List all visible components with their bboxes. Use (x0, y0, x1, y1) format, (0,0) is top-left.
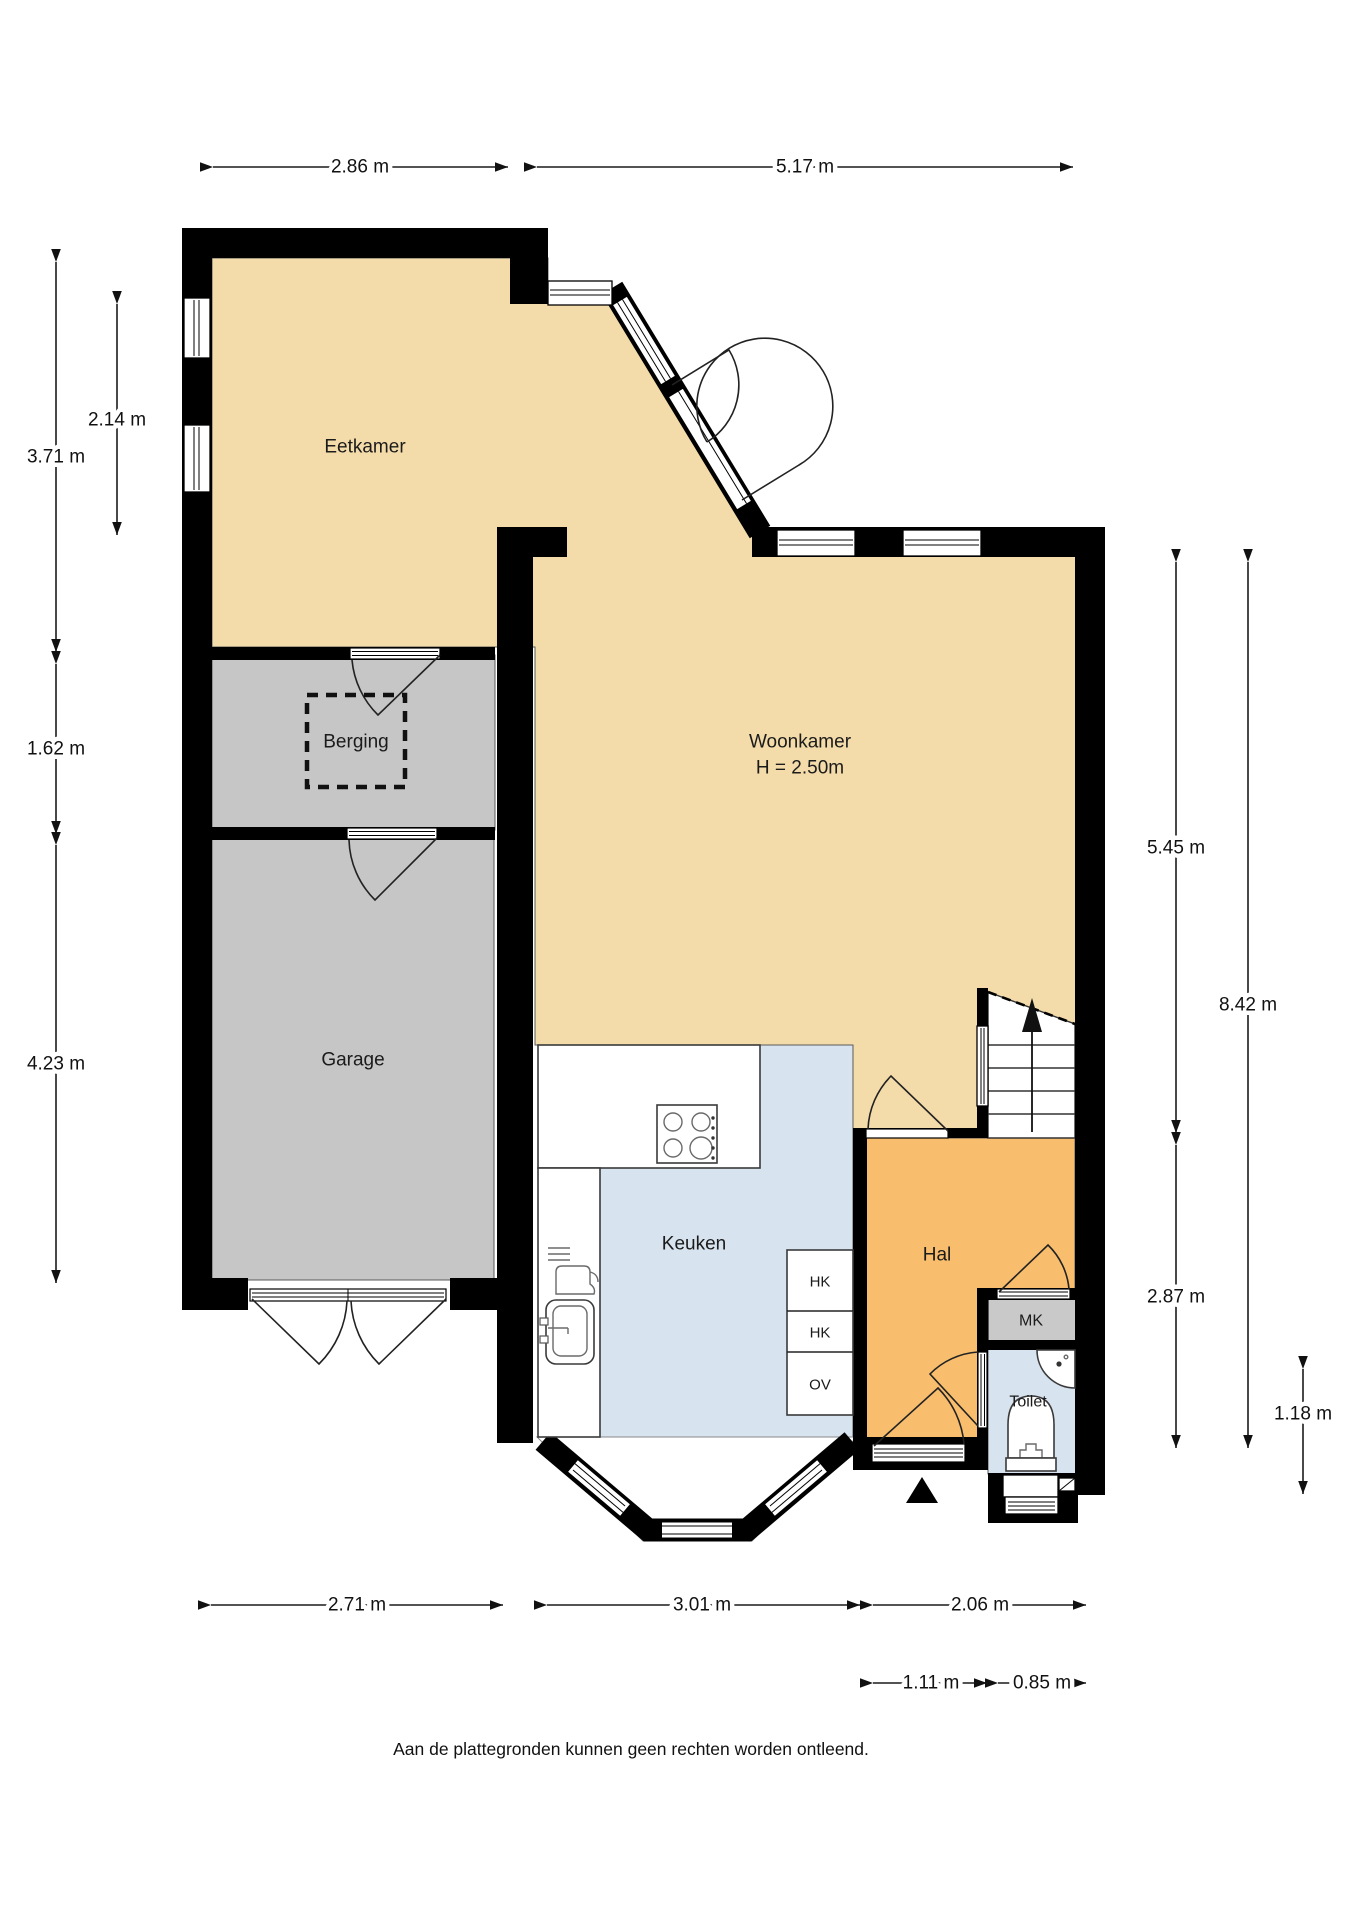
svg-text:4.23 m: 4.23 m (27, 1054, 85, 1075)
dim-top-1: 2.86 m (213, 157, 508, 178)
wall-keuken-hal (853, 1128, 867, 1437)
dim-left-4: 4.23 m (27, 845, 85, 1283)
dim-bottom-4: 1.11 m (873, 1673, 987, 1694)
dim-left-2: 2.14 m (88, 304, 146, 535)
entrance-arrow-icon (906, 1477, 938, 1503)
svg-text:3.71 m: 3.71 m (27, 447, 85, 468)
svg-text:2.06 m: 2.06 m (951, 1595, 1009, 1616)
label-eetkamer: Eetkamer (324, 437, 406, 458)
dim-bottom-5: 0.85 m (998, 1673, 1086, 1694)
stove-icon (657, 1105, 717, 1163)
dim-right-1: 5.45 m (1147, 562, 1205, 1133)
label-garage: Garage (321, 1050, 384, 1071)
svg-text:3.01 m: 3.01 m (673, 1595, 731, 1616)
svg-text:0.85 m: 0.85 m (1013, 1673, 1071, 1694)
svg-text:2.71 m: 2.71 m (328, 1595, 386, 1616)
dim-top-2: 5.17 m (537, 157, 1073, 178)
label-keuken: Keuken (662, 1234, 726, 1255)
label-woonkamer: Woonkamer (749, 732, 852, 753)
stairs-railing (977, 1026, 988, 1106)
wall-left (182, 228, 212, 1310)
label-closet-hk2: HK (810, 1325, 831, 1342)
wall-garage-bottom-right (450, 1278, 498, 1310)
label-closet-hk1: HK (810, 1274, 831, 1291)
wall-stub (497, 527, 567, 557)
window-top-small (548, 281, 612, 305)
svg-text:1.18 m: 1.18 m (1274, 1404, 1332, 1425)
window-woonkamer-top-1 (777, 530, 855, 556)
wall-garage-bottom-left (182, 1278, 248, 1310)
window-eetkamer-left-2 (184, 425, 210, 492)
floorplan-page: Eetkamer Woonkamer H = 2.50m Berging Gar… (0, 0, 1358, 1920)
dim-bottom-2: 3.01 m (547, 1595, 860, 1616)
wall-mk-toilet (988, 1340, 1075, 1350)
dim-right-3: 2.87 m (1147, 1145, 1205, 1448)
wall-top (182, 228, 510, 258)
dim-left-3: 1.62 m (27, 664, 85, 834)
dim-right-4: 1.18 m (1274, 1369, 1332, 1494)
svg-text:8.42 m: 8.42 m (1219, 995, 1277, 1016)
dim-left-1: 3.71 m (27, 262, 85, 652)
floorplan-svg: Eetkamer Woonkamer H = 2.50m Berging Gar… (0, 0, 1358, 1920)
window-eetkamer-left-1 (184, 298, 210, 358)
wall-top-notch (510, 228, 548, 304)
svg-text:1.62 m: 1.62 m (27, 739, 85, 760)
label-mk: MK (1019, 1313, 1043, 1330)
wall-right (1075, 527, 1105, 1495)
svg-text:5.45 m: 5.45 m (1147, 838, 1205, 859)
svg-text:2.87 m: 2.87 m (1147, 1287, 1205, 1308)
dim-right-2: 8.42 m (1219, 562, 1277, 1448)
footer-disclaimer: Aan de plattegronden kunnen geen rechten… (393, 1739, 869, 1759)
svg-text:2.86 m: 2.86 m (331, 157, 389, 178)
label-toilet: Toilet (1009, 1394, 1047, 1411)
label-berging: Berging (323, 732, 389, 753)
dim-bottom-1: 2.71 m (211, 1595, 503, 1616)
label-woonkamer-height: H = 2.50m (756, 758, 844, 779)
window-bay-bottom (662, 1526, 732, 1534)
kitchen-counter-top (538, 1045, 760, 1168)
dim-bottom-3: 2.06 m (873, 1595, 1086, 1616)
svg-text:2.14 m: 2.14 m (88, 410, 146, 431)
crawl-space-hatch (1059, 1478, 1075, 1491)
label-closet-ov: OV (809, 1377, 831, 1394)
door-garage-double (250, 1289, 446, 1364)
window-porch (1003, 1475, 1058, 1514)
svg-text:1.11 m: 1.11 m (903, 1673, 960, 1694)
window-woonkamer-top-2 (903, 530, 981, 556)
svg-text:5.17 m: 5.17 m (776, 157, 834, 178)
wall-mid-vertical (497, 527, 533, 1443)
sink-icon (540, 1300, 594, 1364)
label-hal: Hal (923, 1245, 952, 1266)
